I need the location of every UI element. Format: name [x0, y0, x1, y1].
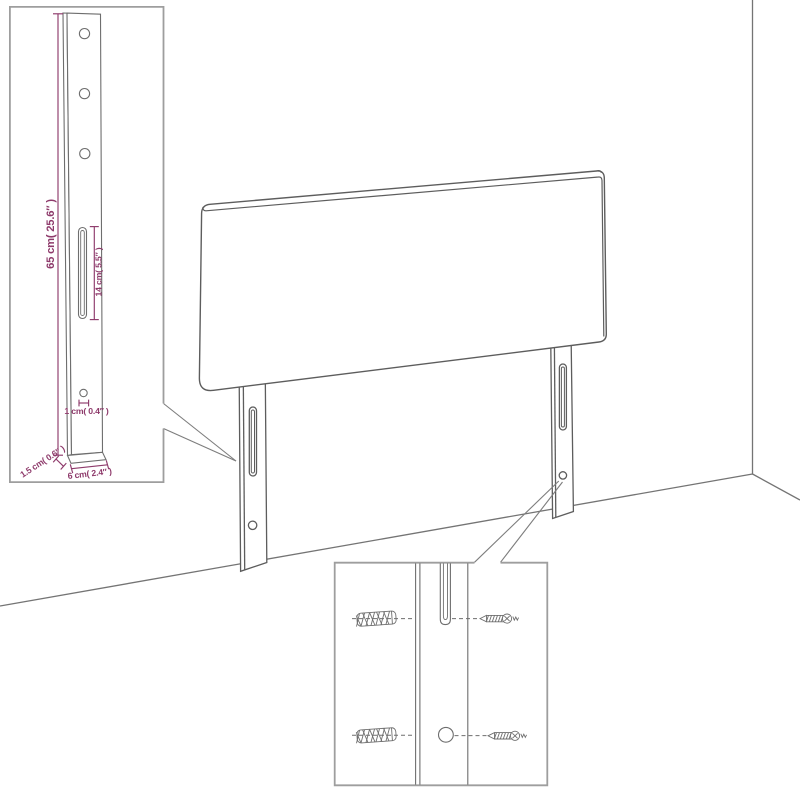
left-leg-hole: [248, 521, 256, 529]
leg-inset-hole-3: [80, 149, 90, 159]
left-inset-pointer-bottom: [164, 429, 237, 462]
leg-inset-hole-1: [79, 28, 89, 38]
headboard-outline: [199, 171, 606, 391]
left-inset-pointer-top: [164, 404, 237, 462]
right-leg-hole: [559, 472, 566, 479]
dim-hole-label: 1 cm( 0.4″ ): [64, 406, 109, 416]
leg-inset-small-hole: [80, 389, 87, 396]
leg-inset-hole-2: [79, 89, 89, 99]
bottom-inset-pointer-right: [501, 482, 563, 562]
strip-hole: [439, 727, 454, 742]
left-leg: [239, 378, 267, 572]
left-leg-slot: [249, 407, 256, 476]
headboard-panel: [199, 171, 606, 391]
leg-detail-inset: 65 cm( 25.6″ ) 14 cm( 5.5″ ) 1 cm( 0.4″ …: [10, 7, 164, 482]
leg-inset-drawing: [63, 13, 106, 463]
screw-inset-background: [335, 563, 548, 786]
floor-line-right: [753, 474, 800, 500]
headboard-assembly-diagram: 65 cm( 25.6″ ) 14 cm( 5.5″ ) 1 cm( 0.4″ …: [0, 0, 800, 800]
screw-detail-inset: [335, 563, 548, 786]
dim-slot-label: 14 cm( 5.5″ ): [94, 247, 104, 296]
callout-lines: [164, 404, 563, 563]
leg-inset-slot: [79, 228, 87, 319]
bottom-inset-pointer-left: [475, 481, 559, 562]
diagram-page: { "colors": { "main_line": "#5d5d5d", "w…: [0, 0, 800, 800]
dim-height-label: 65 cm( 25.6″ ): [45, 199, 57, 269]
right-leg-slot: [559, 364, 566, 430]
